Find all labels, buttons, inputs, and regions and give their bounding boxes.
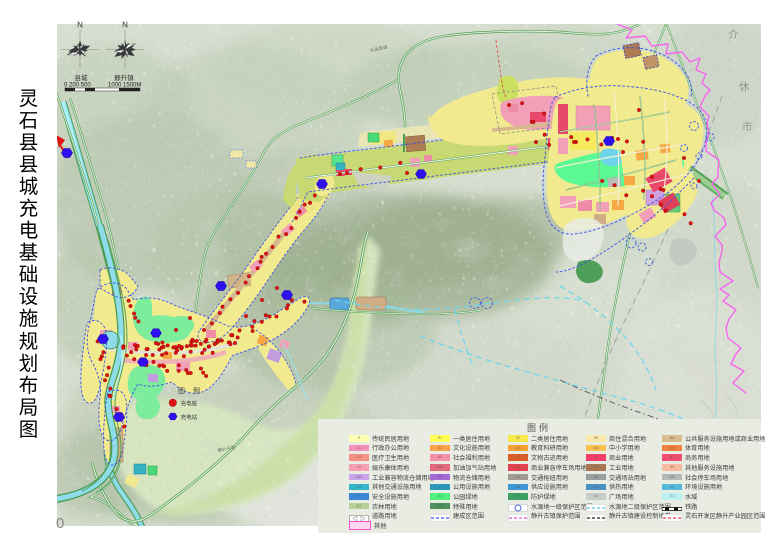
svg-text:介: 介 (728, 29, 739, 41)
svg-text:市: 市 (742, 120, 753, 133)
svg-text:1000 1500M: 1000 1500M (108, 83, 141, 89)
svg-text:充电站: 充电站 (181, 413, 198, 421)
svg-text:充电桩: 充电桩 (181, 400, 198, 408)
svg-text:N: N (122, 21, 128, 30)
svg-text:县城: 县城 (75, 74, 89, 82)
svg-text:休: 休 (739, 81, 750, 93)
svg-text:N: N (77, 21, 83, 30)
svg-text:图 例: 图 例 (178, 386, 203, 395)
svg-text:0 200 500: 0 200 500 (64, 83, 91, 89)
svg-text:0: 0 (56, 515, 64, 532)
svg-text:静升镇: 静升镇 (114, 73, 134, 82)
